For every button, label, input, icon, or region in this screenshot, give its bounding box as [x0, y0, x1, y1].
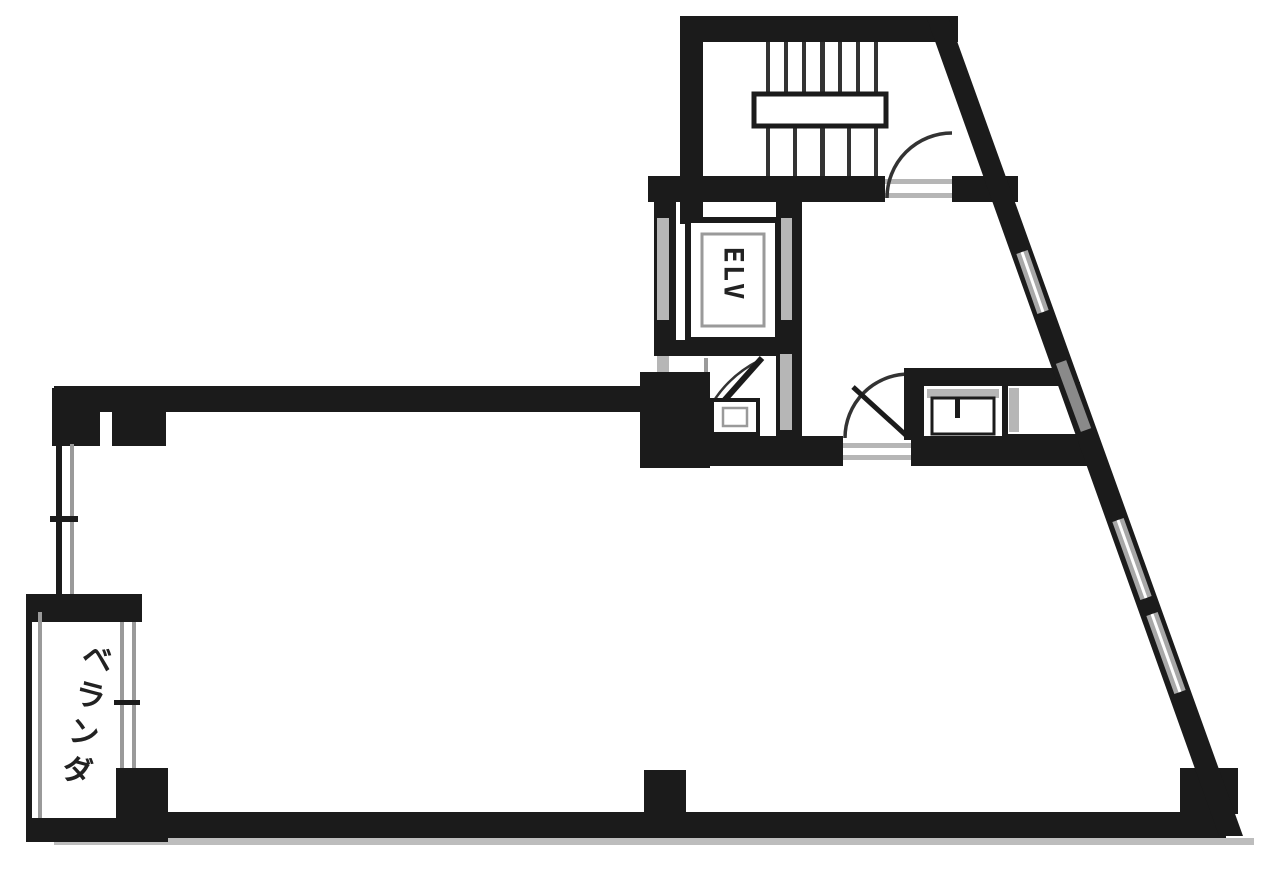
- hall-door-leaf: [853, 387, 909, 438]
- balcony-divider-mullion: [114, 700, 140, 705]
- elevator-west-jamb: [657, 218, 669, 320]
- balcony-north-bar: [26, 594, 142, 622]
- elevator-east-jamb: [780, 218, 792, 320]
- west-window-mullion: [50, 516, 78, 522]
- main-north-column: [112, 386, 166, 446]
- counter-pier: [904, 368, 922, 440]
- hall-south-wall-west: [654, 436, 843, 466]
- south-wall-shadow: [54, 838, 1254, 845]
- entrance-hall: [640, 368, 1096, 468]
- stairwell: [648, 16, 1018, 224]
- main-northwest-corner: [52, 388, 100, 446]
- elevator-toilet-divider: [654, 340, 802, 356]
- balcony-west-outer-line: [26, 594, 32, 842]
- stairwell-north-wall: [680, 16, 958, 42]
- stair-landing: [754, 94, 886, 126]
- toilet-east-jamb: [780, 354, 792, 430]
- elevator-label: ELV: [718, 247, 749, 302]
- hall-south-wall-east: [911, 436, 1096, 466]
- hall-door-threshold-top: [843, 443, 911, 448]
- balcony-divider-line-2: [132, 622, 136, 774]
- counter-back-wall: [904, 368, 1068, 384]
- south-pier-middle: [644, 770, 686, 814]
- floor-plan-drawing: [0, 0, 1280, 881]
- sink-tap: [955, 398, 960, 418]
- balcony-south-wall: [26, 818, 120, 842]
- sink-basin: [932, 398, 994, 434]
- stair-door-threshold-top: [885, 179, 952, 184]
- balcony-divider-line-1: [120, 622, 124, 774]
- hall-door-threshold-bottom: [843, 455, 911, 460]
- balcony-west-inner-line: [38, 612, 42, 828]
- main-south-wall: [116, 812, 1226, 838]
- toilet-fixture: [712, 400, 758, 434]
- floor-plan: ELV ベランダ: [0, 0, 1280, 881]
- stair-door-threshold-bottom: [885, 193, 952, 198]
- stairwell-south-wall-west: [648, 176, 885, 202]
- counter-unit-edge: [1009, 388, 1019, 432]
- balcony-southeast-column: [116, 768, 168, 842]
- stair-door-arc: [887, 133, 952, 198]
